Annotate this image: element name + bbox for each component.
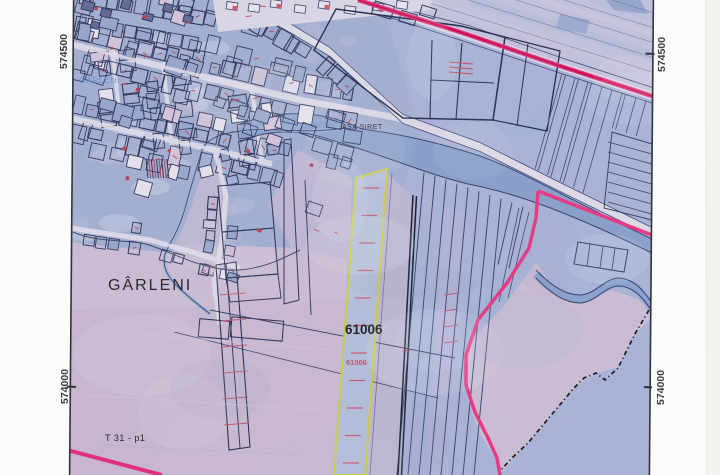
- svg-text:574500: 574500: [58, 34, 70, 69]
- svg-text:574500: 574500: [656, 37, 668, 72]
- svg-text:574000: 574000: [655, 370, 667, 405]
- svg-text:T 31 - p1: T 31 - p1: [105, 433, 145, 443]
- svg-text:61006: 61006: [346, 358, 367, 367]
